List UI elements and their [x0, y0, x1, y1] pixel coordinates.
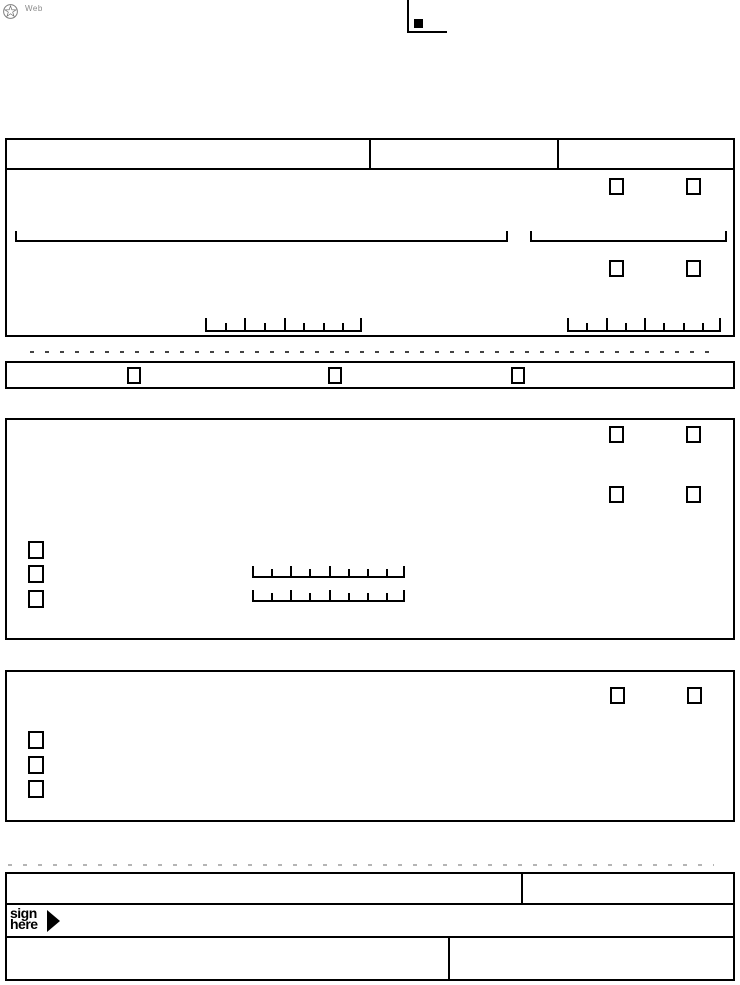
- signature-line-row[interactable]: sign here: [7, 905, 733, 936]
- section2-checkbox-option-d[interactable]: [686, 486, 701, 503]
- circled-star-seal-icon: [3, 4, 18, 19]
- section2-option-checkbox-3[interactable]: [28, 590, 44, 608]
- section2-checkbox-option-a[interactable]: [609, 426, 624, 443]
- section2-option-checkbox-1[interactable]: [28, 541, 44, 559]
- crop-mark-vertical-line: [407, 0, 409, 33]
- sign-here-line2: here: [10, 919, 38, 930]
- section3-option-checkbox-2[interactable]: [28, 756, 44, 774]
- section3-option-checkbox-1[interactable]: [28, 731, 44, 749]
- crop-mark-horizontal-line: [407, 31, 447, 33]
- section1-checkbox-option-d[interactable]: [686, 260, 701, 277]
- section-3: [5, 670, 735, 822]
- section2-checkbox-option-c[interactable]: [609, 486, 624, 503]
- section2-checkbox-option-b[interactable]: [686, 426, 701, 443]
- section-1: [5, 168, 735, 337]
- section1-date-comb-left[interactable]: [205, 318, 362, 332]
- signature-table: sign here: [5, 872, 735, 981]
- section1-checkbox-option-c[interactable]: [609, 260, 624, 277]
- dashed-separator: [30, 351, 714, 353]
- header-table: [5, 138, 735, 170]
- header-column-divider: [557, 140, 559, 168]
- sign-here-arrow-icon: [47, 910, 60, 932]
- option-band: [5, 361, 735, 389]
- band-checkbox-3[interactable]: [511, 367, 525, 384]
- band-checkbox-1[interactable]: [127, 367, 141, 384]
- header-column-divider: [369, 140, 371, 168]
- section1-write-in-line-left[interactable]: [15, 231, 508, 242]
- section3-checkbox-option-a[interactable]: [610, 687, 625, 704]
- light-dashed-separator: [8, 864, 714, 866]
- web-mark-label: Web: [25, 4, 43, 13]
- section1-checkbox-option-a[interactable]: [609, 178, 624, 195]
- section-2: [5, 418, 735, 640]
- band-checkbox-2[interactable]: [328, 367, 342, 384]
- filled-square-mark: [414, 19, 423, 28]
- section1-checkbox-option-b[interactable]: [686, 178, 701, 195]
- section3-checkbox-option-b[interactable]: [687, 687, 702, 704]
- form-page: Web: [0, 0, 740, 985]
- signature-bottom-column-divider: [448, 938, 450, 979]
- section2-date-comb-2[interactable]: [252, 590, 405, 602]
- signature-row-divider: [7, 936, 733, 938]
- sign-here-label: sign here: [10, 908, 38, 930]
- section2-option-checkbox-2[interactable]: [28, 565, 44, 583]
- section3-option-checkbox-3[interactable]: [28, 780, 44, 798]
- section1-write-in-line-right[interactable]: [530, 231, 727, 242]
- signature-top-column-divider: [521, 874, 523, 903]
- section2-date-comb-1[interactable]: [252, 566, 405, 578]
- section1-date-comb-right[interactable]: [567, 318, 721, 332]
